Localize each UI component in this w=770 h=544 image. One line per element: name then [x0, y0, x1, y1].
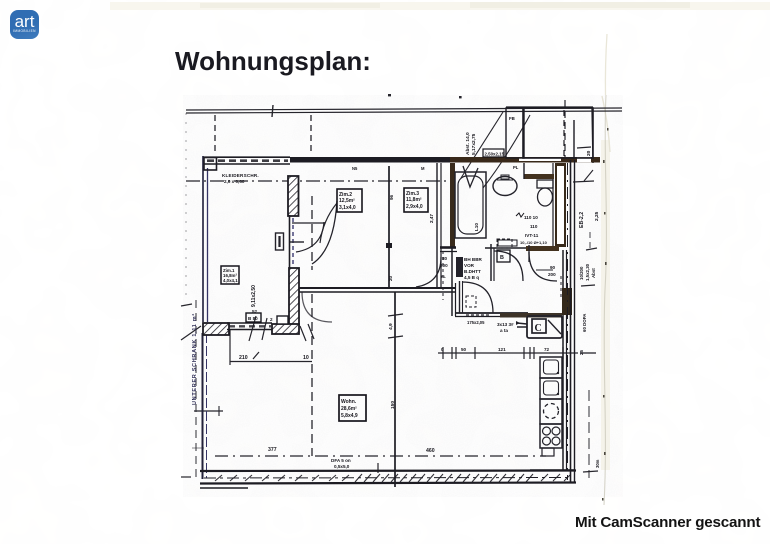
svg-text:175x2,05: 175x2,05: [467, 320, 485, 325]
svg-text:4,9: 4,9: [388, 323, 394, 330]
svg-text:20: 20: [586, 150, 592, 156]
svg-text:UNTERER SCHRANK 1,11 m²: UNTERER SCHRANK 1,11 m²: [191, 313, 198, 405]
svg-text:2: 2: [270, 317, 273, 322]
svg-text:110: 110: [530, 224, 538, 229]
svg-text:B.DHTT: B.DHTT: [464, 269, 481, 274]
svg-text:Abst: Abst: [591, 268, 596, 278]
svg-text:52: 52: [252, 309, 258, 314]
svg-text:10/200: 10/200: [579, 266, 584, 280]
svg-text:1,5x2,30: 1,5x2,30: [585, 263, 590, 281]
svg-text:60 DOPA: 60 DOPA: [582, 313, 587, 332]
svg-text:Wohn.: Wohn.: [341, 399, 357, 405]
svg-text:200: 200: [440, 263, 448, 268]
svg-text:BH BBR: BH BBR: [464, 257, 483, 262]
svg-text:50: 50: [461, 347, 467, 352]
svg-text:4,5 B q: 4,5 B q: [464, 275, 479, 280]
svg-text:4,0x4,1: 4,0x4,1: [223, 278, 238, 283]
svg-text:3x13 3#: 3x13 3#: [497, 322, 514, 327]
svg-text:90: 90: [550, 265, 556, 270]
svg-text:IVT-11: IVT-11: [525, 233, 539, 238]
svg-text:10,-/10 Ø+1,10: 10,-/10 Ø+1,10: [520, 240, 548, 245]
svg-text:PL: PL: [513, 165, 519, 170]
svg-text:2,25: 2,25: [594, 211, 600, 221]
svg-text:KLEIDERSCHR.: KLEIDERSCHR.: [222, 173, 259, 178]
svg-text:VOR: VOR: [464, 263, 475, 268]
svg-text:DFA 5 on: DFA 5 on: [331, 458, 351, 463]
svg-text:C: C: [535, 323, 542, 334]
svg-text:3,1x4,0: 3,1x4,0: [339, 205, 356, 211]
svg-text:B: B: [500, 255, 504, 261]
svg-text:5,17x2,75: 5,17x2,75: [471, 133, 477, 155]
svg-text:L10: L10: [474, 223, 479, 231]
svg-text:96: 96: [389, 194, 394, 200]
svg-text:72: 72: [544, 347, 550, 352]
svg-text:25: 25: [579, 349, 584, 355]
svg-text:210: 210: [239, 355, 248, 361]
svg-text:12,5m²: 12,5m²: [339, 198, 355, 204]
svg-text:0,5x5,0: 0,5x5,0: [334, 464, 350, 469]
svg-text:28,6m²: 28,6m²: [341, 406, 357, 412]
svg-text:2,0 x 0,60: 2,0 x 0,60: [224, 179, 245, 184]
svg-text:EB-2,2: EB-2,2: [579, 212, 585, 228]
svg-text:30m: 30m: [595, 459, 600, 468]
svg-text:110 10: 110 10: [524, 215, 538, 220]
svg-text:5,8x4,9: 5,8x4,9: [341, 413, 358, 419]
svg-text:150: 150: [390, 401, 396, 409]
svg-text:121: 121: [498, 347, 506, 352]
svg-text:10: 10: [303, 355, 309, 361]
svg-text:11,8m²: 11,8m²: [406, 197, 422, 203]
svg-text:200: 200: [548, 272, 556, 277]
svg-text:377: 377: [268, 447, 277, 453]
svg-text:80: 80: [442, 256, 448, 261]
svg-text:a ta: a ta: [500, 328, 508, 333]
svg-text:B 80: B 80: [248, 316, 258, 321]
svg-text:0: 0: [441, 347, 444, 352]
svg-text:2,50x2,15: 2,50x2,15: [485, 152, 505, 157]
svg-text:N5: N5: [352, 166, 358, 171]
svg-text:FL: FL: [441, 274, 446, 279]
svg-text:Abst. 14,0: Abst. 14,0: [465, 132, 471, 155]
svg-text:2,47: 2,47: [429, 214, 434, 223]
svg-text:FB: FB: [509, 116, 515, 121]
svg-text:M: M: [421, 166, 425, 171]
svg-text:20: 20: [388, 275, 393, 281]
svg-text:460: 460: [426, 448, 435, 454]
svg-text:9,11x2,50: 9,11x2,50: [251, 285, 257, 307]
svg-text:2,9x4,0: 2,9x4,0: [406, 204, 423, 210]
